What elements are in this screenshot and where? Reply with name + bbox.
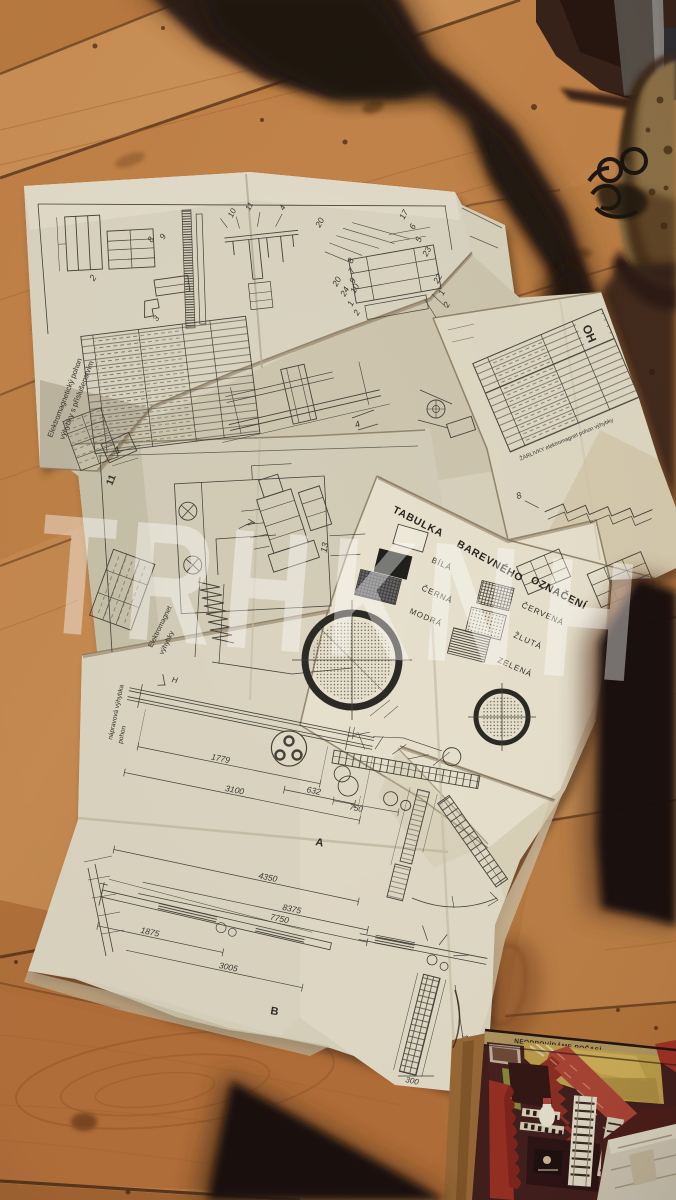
svg-text:N: N [416,507,526,703]
svg-text:H: H [216,494,319,690]
svg-text:T: T [32,479,121,674]
svg-text:H: H [532,521,645,718]
svg-text:K: K [320,502,423,698]
svg-text:R: R [118,486,221,682]
